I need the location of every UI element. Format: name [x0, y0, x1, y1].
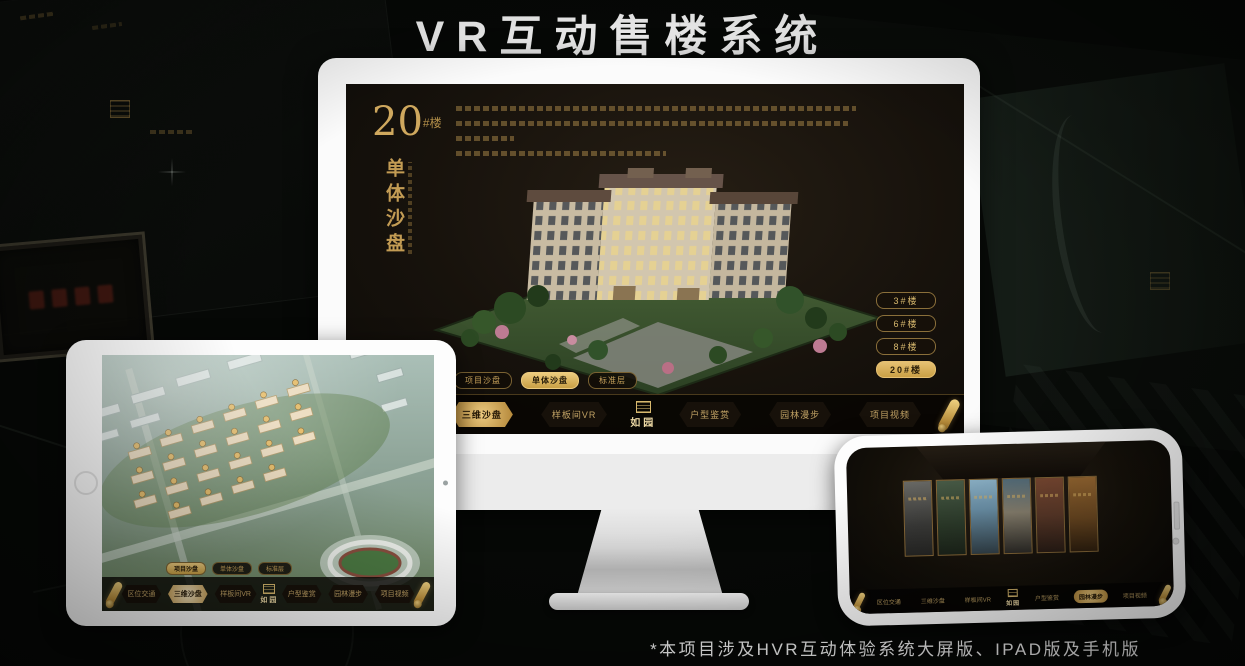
panel-interior[interactable]	[1068, 476, 1099, 553]
floor-button-6[interactable]: 6#楼	[876, 315, 936, 332]
monitor-base	[549, 593, 749, 610]
panel-building[interactable]	[1002, 477, 1033, 554]
side-speaker-icon	[1173, 502, 1180, 530]
bg-gold-logo-chip	[110, 100, 130, 118]
nav-item-garden-walk[interactable]: 园林漫步	[1074, 589, 1108, 603]
floor-title: 20#楼	[372, 102, 442, 142]
panorama-panel-row	[903, 476, 1099, 557]
subtab-project-sandbox[interactable]: 项目沙盘	[166, 562, 206, 575]
nav-item-3d-sandbox[interactable]: 三维沙盘	[916, 593, 950, 607]
floor-suffix: #楼	[423, 116, 442, 130]
app-logo: 如园	[260, 584, 278, 605]
floor-number: 20	[372, 99, 423, 145]
pavilion-silhouette	[916, 441, 1107, 480]
screen-subtitle: 单体沙盘	[380, 158, 407, 258]
promo-canvas: VR互动售楼系统 20#楼 单体沙盘	[0, 0, 1245, 666]
scroll-icon[interactable]	[852, 592, 866, 613]
monitor-stand	[577, 508, 723, 596]
nav-item-garden-walk[interactable]: 园林漫步	[325, 585, 371, 603]
building-model-3d[interactable]	[418, 150, 898, 400]
camera-icon	[443, 481, 448, 486]
bg-gold-label	[150, 130, 192, 134]
scroll-icon[interactable]	[412, 581, 431, 608]
subtab-standard-floor[interactable]: 标准层	[588, 372, 637, 389]
nav-item-3d-sandbox[interactable]: 三维沙盘	[165, 585, 211, 603]
logo-emblem-icon	[636, 401, 651, 413]
subtab-project-sandbox[interactable]: 项目沙盘	[454, 372, 512, 389]
nav-item-location-traffic[interactable]: 区位交通	[118, 585, 164, 603]
logo-text: 如园	[260, 595, 278, 605]
nav-item-showroom-vr[interactable]: 样板间VR	[211, 585, 260, 603]
sandbox-subtabs: 项目沙盘 单体沙盘 标准层	[454, 372, 637, 389]
panel-courtyard[interactable]	[903, 480, 934, 557]
subtab-standard-floor[interactable]: 标准层	[258, 562, 292, 575]
nav-item-showroom-vr[interactable]: 样板间VR	[960, 592, 997, 606]
logo-text: 如园	[1006, 598, 1020, 607]
floor-button-3[interactable]: 3#楼	[876, 292, 936, 309]
tablet-device: 项目沙盘 单体沙盘 标准层 区位交通 三维沙盘 样板间VR 如园 户型鉴赏 园林…	[66, 340, 456, 626]
subtab-single-sandbox[interactable]: 单体沙盘	[212, 562, 252, 575]
nav-item-unit-gallery[interactable]: 户型鉴赏	[674, 402, 746, 427]
phone-screen: 区位交通 三维沙盘 样板间VR 如园 户型鉴赏 园林漫步 项目视频	[846, 440, 1174, 614]
panel-landscape[interactable]	[969, 478, 1000, 555]
nav-item-project-video[interactable]: 项目视频	[854, 402, 926, 427]
subtitle-english-caption	[408, 162, 412, 254]
scroll-icon[interactable]	[1158, 584, 1172, 605]
footnote-text: *本项目涉及HVR互动体验系统大屏版、IPAD版及手机版	[650, 635, 1141, 660]
front-camera-icon	[1172, 538, 1179, 545]
home-button[interactable]	[74, 471, 98, 495]
nav-item-location-traffic[interactable]: 区位交通	[872, 594, 906, 608]
app-logo: 如园	[630, 401, 656, 429]
nav-item-unit-gallery[interactable]: 户型鉴赏	[1030, 590, 1064, 604]
panel-autumn-court[interactable]	[1035, 477, 1066, 554]
nav-item-project-video[interactable]: 项目视频	[372, 585, 418, 603]
bg-gold-logo-chip	[1150, 272, 1170, 290]
bg-aerial-river	[967, 63, 1245, 376]
subtab-single-sandbox[interactable]: 单体沙盘	[521, 372, 579, 389]
floor-button-group: 3#楼 6#楼 8#楼 20#楼	[876, 292, 936, 378]
logo-text: 如园	[630, 414, 656, 429]
tablet-subtabs: 项目沙盘 单体沙盘 标准层	[166, 562, 292, 575]
scroll-icon[interactable]	[937, 397, 962, 432]
compass-icon	[158, 158, 186, 186]
app-logo: 如园	[1006, 589, 1020, 607]
nav-item-unit-gallery[interactable]: 户型鉴赏	[279, 585, 325, 603]
tablet-nav-bar: 区位交通 三维沙盘 样板间VR 如园 户型鉴赏 园林漫步 项目视频	[102, 577, 434, 611]
page-title: VR互动售楼系统	[0, 2, 1245, 64]
floor-button-8[interactable]: 8#楼	[876, 338, 936, 355]
logo-emblem-icon	[1008, 589, 1018, 597]
logo-emblem-icon	[263, 584, 275, 594]
nav-item-project-video[interactable]: 项目视频	[1118, 588, 1152, 602]
phone-device: 区位交通 三维沙盘 样板间VR 如园 户型鉴赏 园林漫步 项目视频	[834, 427, 1187, 626]
scroll-icon[interactable]	[104, 581, 123, 608]
nav-item-3d-sandbox[interactable]: 三维沙盘	[446, 402, 518, 427]
nav-item-garden-walk[interactable]: 园林漫步	[764, 402, 836, 427]
floor-button-20[interactable]: 20#楼	[876, 361, 936, 378]
nav-item-showroom-vr[interactable]: 样板间VR	[536, 402, 613, 427]
tablet-screen: 项目沙盘 单体沙盘 标准层 区位交通 三维沙盘 样板间VR 如园 户型鉴赏 园林…	[102, 355, 434, 611]
phone-nav-bar: 区位交通 三维沙盘 样板间VR 如园 户型鉴赏 园林漫步 项目视频	[850, 582, 1175, 614]
panel-garden[interactable]	[936, 479, 967, 556]
